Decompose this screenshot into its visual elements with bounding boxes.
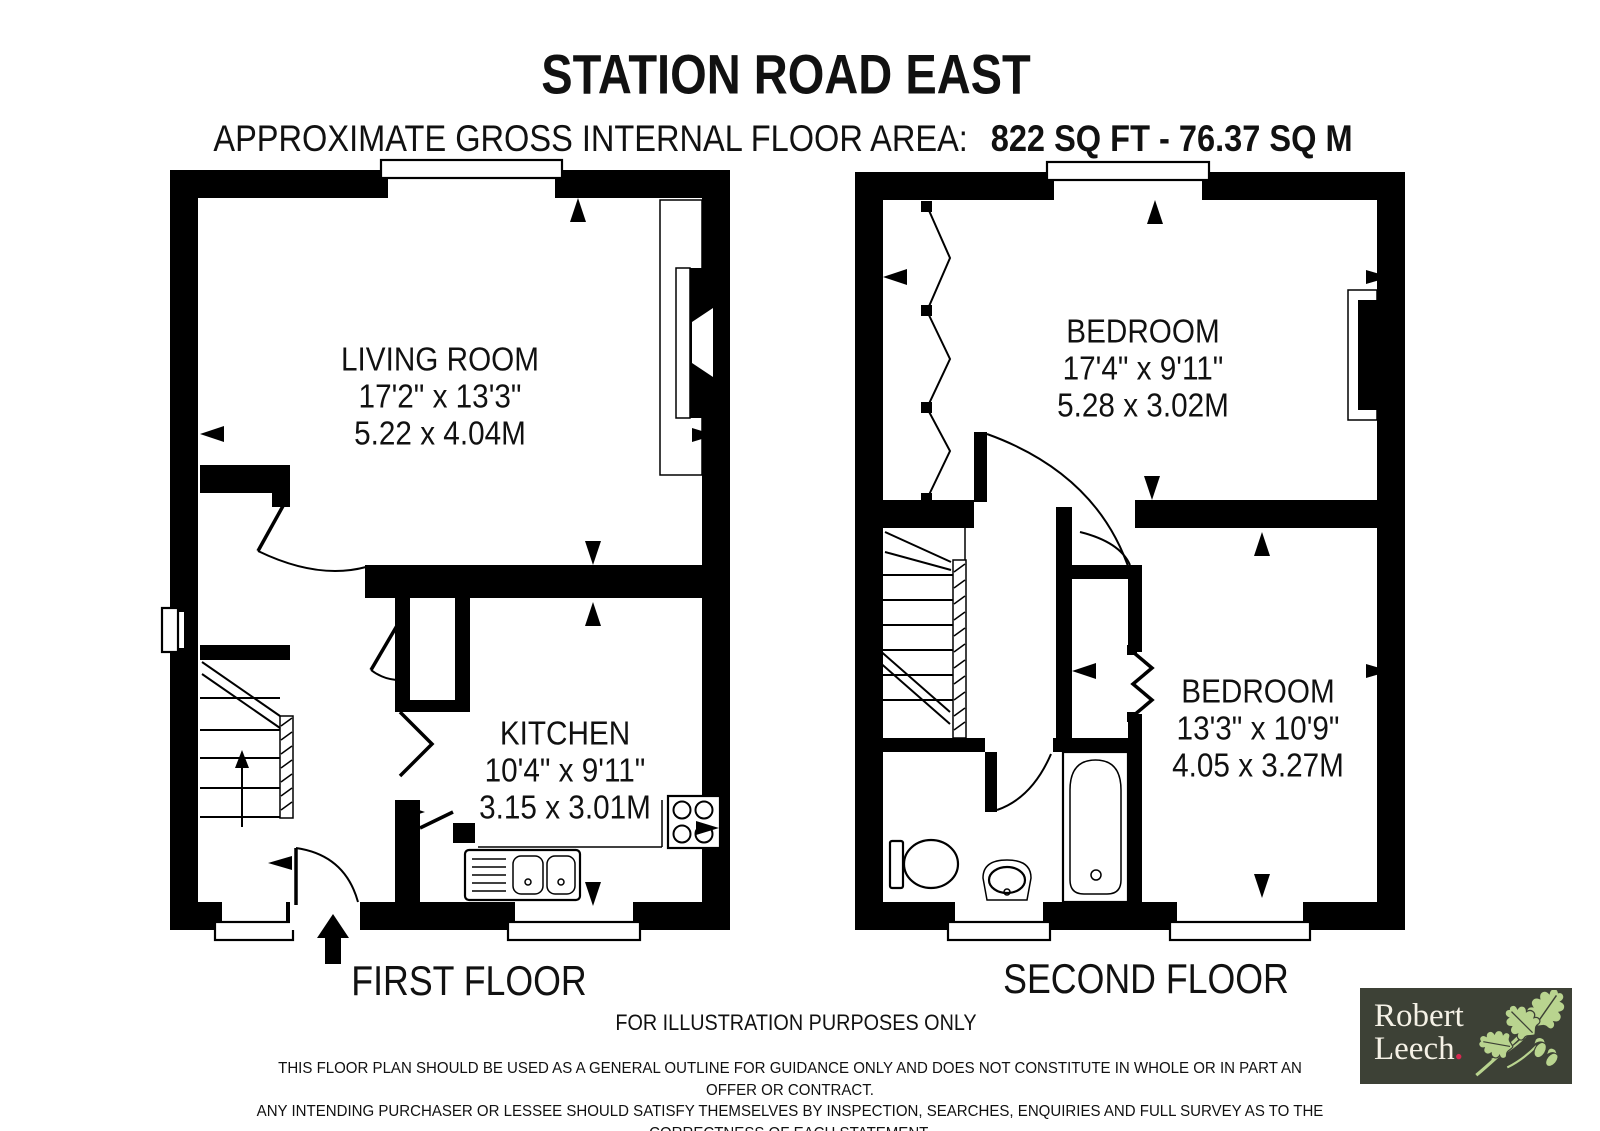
stairs-wall-stub: [200, 645, 290, 660]
room-size-metric: 5.28 x 3.02M: [1057, 387, 1229, 424]
room-size-metric: 4.05 x 3.27M: [1172, 747, 1344, 784]
room-size-imperial: 17'4" x 9'11": [1057, 350, 1229, 387]
acorn-icon: [1531, 1037, 1560, 1068]
floorplan-page: STATION ROAD EAST APPROXIMATE GROSS INTE…: [0, 0, 1600, 1131]
measure-arrow-left: [883, 269, 907, 285]
door-leaf: [974, 432, 987, 502]
kitchen-chimney-wall: [455, 598, 470, 712]
disclaimer-line: THIS FLOOR PLAN SHOULD BE USED AS A GENE…: [257, 1058, 1324, 1101]
closet-wall: [1072, 565, 1142, 579]
measure-arrow-up: [1147, 200, 1163, 224]
closet-bifold-door: [1127, 645, 1152, 722]
first-floor-plan: [162, 160, 730, 964]
living-kitchen-wall: [365, 565, 702, 598]
room-size-metric: 3.15 x 3.01M: [479, 789, 651, 826]
window: [948, 902, 1050, 940]
door-arc: [1080, 532, 1130, 565]
bathroom-door: [985, 752, 1051, 812]
floorplan-drawing: [0, 0, 1600, 1131]
window: [508, 902, 640, 940]
kitchen-label: KITCHEN 10'4" x 9'11" 3.15 x 3.01M: [479, 715, 651, 826]
room-size-imperial: 13'3" x 10'9": [1172, 710, 1344, 747]
basin: [983, 860, 1031, 900]
oak-leaves-icon: [1462, 990, 1570, 1082]
kitchen-chimney-wall: [395, 700, 470, 712]
room-name: BEDROOM: [1057, 313, 1229, 350]
window: [1047, 162, 1209, 200]
wardrobe-zigzag: [921, 201, 950, 504]
bedroom-bathroom-wall: [1128, 738, 1142, 902]
agency-name: Robert Leech.: [1374, 1000, 1464, 1066]
room-name: KITCHEN: [479, 715, 651, 752]
second-floor-plan: [855, 162, 1405, 940]
measure-arrow-down: [585, 541, 601, 565]
disclaimer-line: ANY INTENDING PURCHASER OR LESSEE SHOULD…: [257, 1101, 1324, 1131]
measure-arrow-up: [1254, 532, 1270, 556]
agency-logo: Robert Leech.: [1360, 988, 1572, 1084]
bedroom2-label: BEDROOM 13'3" x 10'9" 4.05 x 3.27M: [1172, 673, 1344, 784]
hall-wall-stub: [200, 465, 290, 493]
bathroom-wall: [855, 738, 985, 752]
second-floor-label: SECOND FLOOR: [1003, 955, 1289, 1003]
measure-arrow-up: [585, 602, 601, 626]
bedroom1-label: BEDROOM 17'4" x 9'11" 5.28 x 3.02M: [1057, 313, 1229, 424]
window: [1170, 902, 1310, 940]
window: [381, 160, 562, 198]
kitchen-door-jamb: [453, 823, 475, 843]
bathtub: [1063, 752, 1128, 902]
stairs: [200, 662, 293, 827]
window: [162, 608, 184, 652]
measure-arrow-left: [1072, 663, 1096, 679]
disclaimer: THIS FLOOR PLAN SHOULD BE USED AS A GENE…: [257, 1058, 1324, 1131]
sink: [465, 850, 580, 900]
room-size-metric: 5.22 x 4.04M: [341, 415, 539, 452]
measure-arrow-up: [570, 198, 586, 222]
window: [215, 902, 293, 940]
closet-wall: [1128, 579, 1142, 652]
measure-arrow-down: [1254, 874, 1270, 898]
illustration-note: FOR ILLUSTRATION PURPOSES ONLY: [615, 1010, 976, 1036]
hob: [668, 796, 720, 848]
room-size-imperial: 17'2" x 13'3": [341, 378, 539, 415]
bathroom-wall: [1053, 738, 1140, 752]
dividing-wall: [883, 500, 974, 528]
living-room-door: [258, 497, 366, 571]
measure-arrow-left: [200, 426, 224, 442]
measure-arrow-left: [268, 856, 292, 870]
first-floor-label: FIRST FLOOR: [351, 957, 586, 1005]
room-size-imperial: 10'4" x 9'11": [479, 752, 651, 789]
room-name: LIVING ROOM: [341, 341, 539, 378]
measure-arrow-down: [1144, 476, 1160, 500]
bifold-door: [400, 712, 432, 776]
chimney-breast: [1348, 290, 1377, 420]
room-name: BEDROOM: [1172, 673, 1344, 710]
living-room-label: LIVING ROOM 17'2" x 13'3" 5.22 x 4.04M: [341, 341, 539, 452]
dividing-wall: [1135, 500, 1377, 528]
landing-wall: [1056, 507, 1072, 738]
stairs: [877, 532, 966, 738]
toilet: [890, 840, 958, 888]
